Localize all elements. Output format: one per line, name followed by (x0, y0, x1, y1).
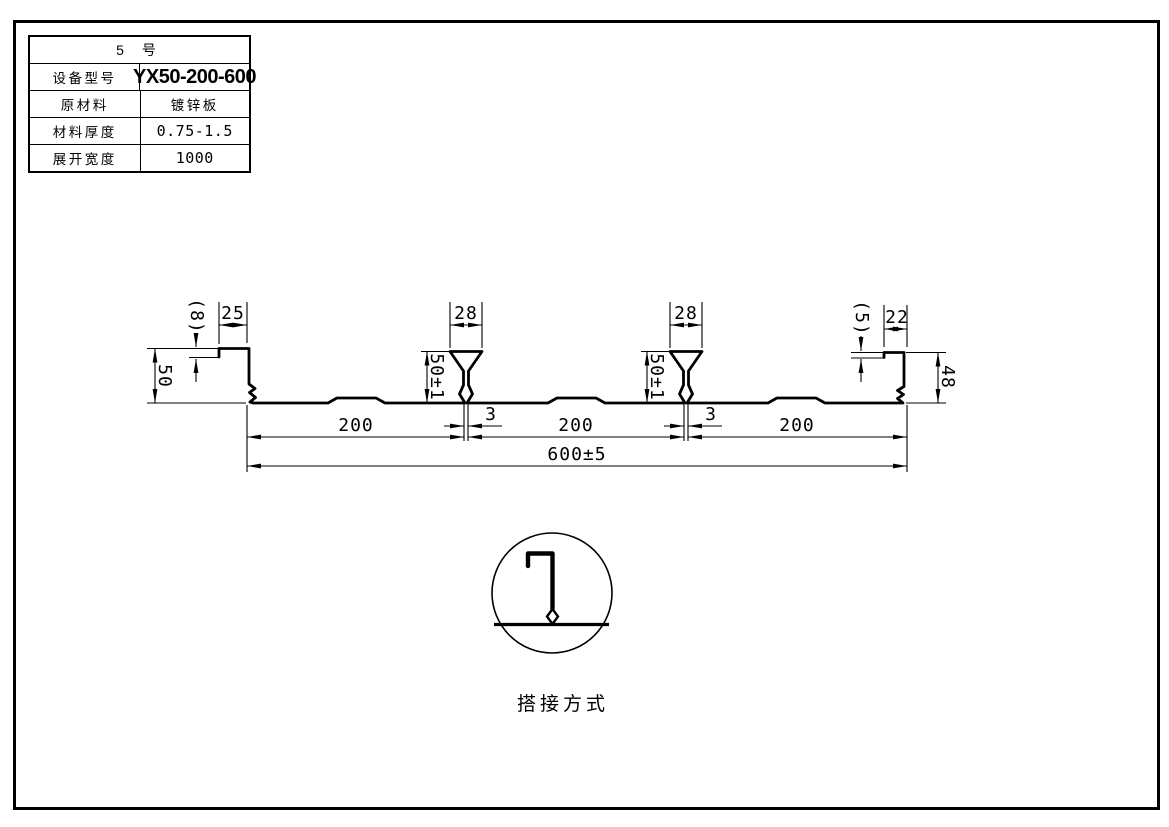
dim-label-left-height: 50 (154, 364, 175, 388)
dim-label-module2: 200 (558, 415, 594, 436)
dim-label-module3: 200 (779, 415, 815, 436)
dim-label-left-lip-drop: (8) (186, 298, 207, 334)
dim-label-right-height: 48 (937, 365, 958, 389)
dim-label-rib2-height: 50±1 (646, 353, 667, 400)
dim-label-seam1: 3 (485, 404, 497, 425)
dim-label-right-lip-drop: (5) (851, 300, 872, 336)
drawing-sheet: 5 号 设备型号 YX50-200-600 原材料 镀锌板 材料厚度 0.75-… (0, 0, 1169, 827)
dim-label-right-lip-width: 22 (885, 307, 909, 328)
dim-label-module1: 200 (338, 415, 374, 436)
panel-profile-outline (219, 349, 904, 404)
dim-label-left-lip-width: 25 (221, 303, 245, 324)
dim-label-rib2-width: 28 (674, 303, 698, 324)
detail-caption: 搭接方式 (517, 693, 609, 715)
detail-seam-diamond (547, 609, 558, 624)
dim-label-seam2: 3 (705, 404, 717, 425)
dim-label-overall: 600±5 (547, 444, 606, 465)
detail-hook-profile (528, 554, 553, 610)
dim-label-rib1-width: 28 (454, 303, 478, 324)
profile-drawing: 50 (8) 25 28 50±1 3 28 50±1 3 (0, 0, 1169, 827)
dim-label-rib1-height: 50±1 (426, 353, 447, 400)
